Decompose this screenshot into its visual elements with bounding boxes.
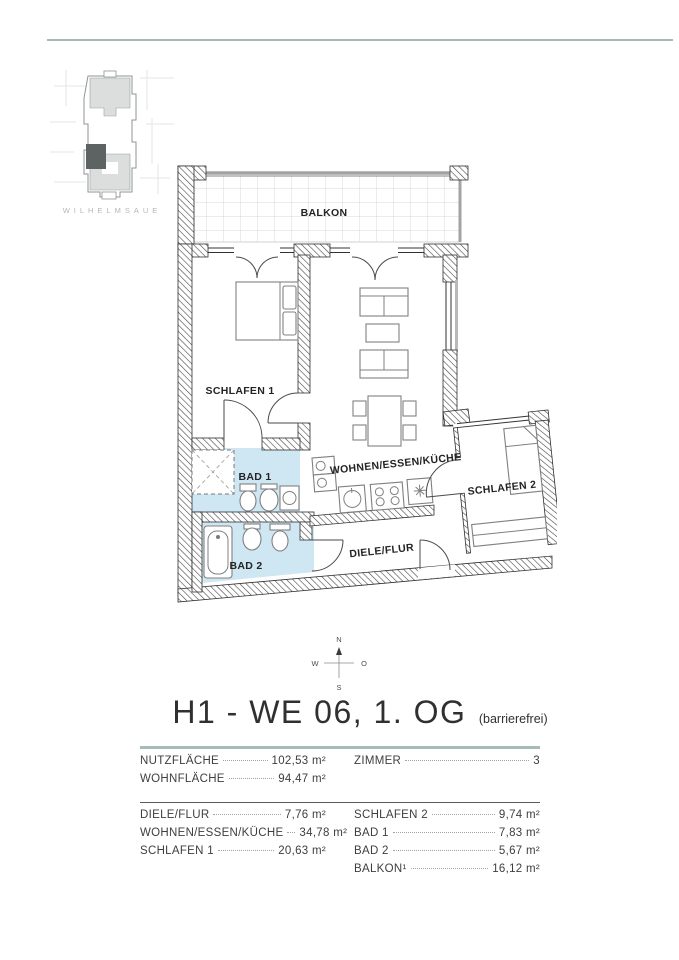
area-label: DIELE/FLUR (140, 809, 209, 821)
unit-location-marker (86, 144, 106, 169)
dotted-leader (229, 778, 274, 779)
bed-icon (236, 282, 298, 340)
room-label-schlafen1: SCHLAFEN 1 (206, 385, 275, 397)
kitchen-sink-icon (338, 485, 366, 513)
area-value: 34,78 m² (299, 827, 347, 839)
area-row: SCHLAFEN 1 20,63 m² (140, 845, 326, 863)
summary-section: NUTZFLÄCHE 102,53 m² WOHNFLÄCHE 94,47 m²… (140, 755, 540, 791)
compass-s: S (336, 683, 341, 692)
area-label: ZIMMER (354, 755, 401, 767)
compass-n: N (336, 635, 341, 644)
area-label: SCHLAFEN 2 (354, 809, 428, 821)
dining-table-icon (353, 396, 416, 446)
dotted-leader (287, 832, 295, 833)
area-row: SCHLAFEN 2 9,74 m² (354, 809, 540, 827)
balcony-door-arc (236, 257, 257, 278)
area-label: WOHNEN/ESSEN/KÜCHE (140, 827, 283, 839)
sofa-icon (360, 350, 408, 378)
balcony-door-arc (352, 257, 375, 280)
bathtub-icon (204, 526, 232, 578)
area-label: WOHNFLÄCHE (140, 773, 225, 785)
dotted-leader (405, 760, 529, 761)
area-row: BALKON¹ 16,12 m² (354, 863, 540, 881)
area-row: BAD 1 7,83 m² (354, 827, 540, 845)
sink-icon (260, 484, 278, 511)
area-row: DIELE/FLUR 7,76 m² (140, 809, 326, 827)
sofa-icon (360, 288, 408, 316)
coffee-table-icon (366, 324, 399, 342)
dotted-leader (218, 850, 274, 851)
area-value: 7,76 m² (285, 809, 326, 821)
site-building-footprint (84, 71, 136, 199)
unit-title: H1 - WE 06, 1. OG (172, 694, 466, 730)
appliance-icon (407, 478, 433, 505)
area-row: BAD 2 5,67 m² (354, 845, 540, 863)
room-label-bad2: BAD 2 (229, 560, 262, 572)
sink-icon (243, 524, 261, 550)
window-band (178, 244, 468, 280)
area-table: NUTZFLÄCHE 102,53 m² WOHNFLÄCHE 94,47 m²… (140, 746, 540, 881)
dotted-leader (393, 850, 495, 851)
site-plan-map (46, 64, 178, 206)
area-row: WOHNFLÄCHE 94,47 m² (140, 773, 326, 791)
washing-machine-icon (280, 486, 299, 510)
unit-title-suffix: (barrierefrei) (479, 712, 548, 726)
area-value: 20,63 m² (278, 845, 326, 857)
dotted-leader (213, 814, 280, 815)
compass-w: W (311, 659, 319, 668)
area-value: 102,53 m² (272, 755, 326, 767)
shower-icon (192, 450, 234, 494)
area-value: 9,74 m² (499, 809, 540, 821)
area-value: 16,12 m² (492, 863, 540, 875)
area-value: 94,47 m² (278, 773, 326, 785)
site-plan-caption: WILHELMSAUE (40, 206, 184, 215)
area-label: BAD 2 (354, 845, 389, 857)
table-top-rule (140, 746, 540, 749)
compass-icon: N O S W (300, 626, 380, 700)
floor-plan: SCHLAFEN 2 BALKON SCHLAFEN 1 BAD 1 BAD 2… (172, 160, 557, 622)
north-arrow (336, 647, 342, 655)
dotted-leader (432, 814, 495, 815)
page-title: H1 - WE 06, 1. OG (barrierefrei) (100, 694, 620, 731)
rooms-section: DIELE/FLUR 7,76 m² WOHNEN/ESSEN/KÜCHE 34… (140, 809, 540, 881)
room-label-balkon: BALKON (301, 207, 348, 219)
compass-o: O (361, 659, 367, 668)
top-divider (47, 39, 673, 41)
toilet-icon (270, 524, 290, 551)
wall-west (178, 244, 192, 596)
area-value: 5,67 m² (499, 845, 540, 857)
table-section-rule (140, 802, 540, 804)
schlafen2-wing: SCHLAFEN 2 (419, 410, 557, 559)
area-label: NUTZFLÄCHE (140, 755, 219, 767)
area-label: SCHLAFEN 1 (140, 845, 214, 857)
stove-icon (370, 482, 404, 510)
room-label-wohnen: WOHNEN/ESSEN/KÜCHE (329, 450, 462, 477)
room-label-diele: DIELE/FLUR (349, 542, 415, 561)
area-label: BALKON¹ (354, 863, 407, 875)
area-row: WOHNEN/ESSEN/KÜCHE 34,78 m² (140, 827, 326, 845)
area-label: BAD 1 (354, 827, 389, 839)
area-row: NUTZFLÄCHE 102,53 m² (140, 755, 326, 773)
dotted-leader (393, 832, 495, 833)
area-value: 7,83 m² (499, 827, 540, 839)
floorplan-sheet: WILHELMSAUE (0, 0, 679, 960)
wall-east (443, 255, 470, 426)
area-row: ZIMMER 3 (354, 755, 540, 773)
area-value: 3 (533, 755, 540, 767)
room-label-bad1: BAD 1 (238, 471, 271, 483)
toilet-icon (240, 484, 256, 511)
dotted-leader (411, 868, 489, 869)
dotted-leader (223, 760, 267, 761)
